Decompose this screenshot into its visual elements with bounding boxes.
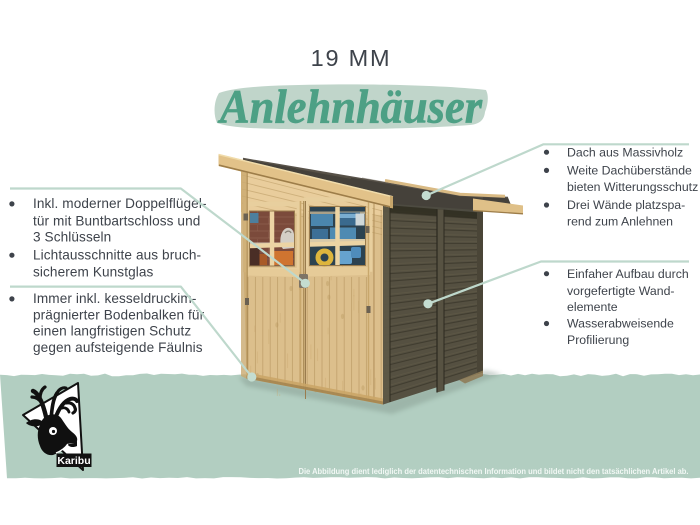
svg-text:Inkl. moderner Doppelflügel-: Inkl. moderner Doppelflügel- bbox=[33, 196, 207, 211]
svg-text:Profilierung: Profilierung bbox=[567, 333, 629, 347]
svg-text:Lichtausschnitte aus bruch-: Lichtausschnitte aus bruch- bbox=[33, 247, 201, 262]
svg-text:elemente: elemente bbox=[567, 300, 618, 314]
svg-text:Wasserabweisende: Wasserabweisende bbox=[567, 317, 674, 331]
svg-text:Drei Wände platzspa-: Drei Wände platzspa- bbox=[567, 198, 685, 212]
svg-text:einen langfristigen Schutz: einen langfristigen Schutz bbox=[33, 324, 191, 339]
svg-text:bieten Witterungsschutz: bieten Witterungsschutz bbox=[567, 180, 698, 194]
svg-text:prägnierter Bodenbalken für: prägnierter Bodenbalken für bbox=[33, 307, 205, 322]
svg-text:19 MM: 19 MM bbox=[311, 45, 392, 71]
svg-text:vorgefertigte Wand-: vorgefertigte Wand- bbox=[567, 284, 675, 298]
svg-text:3 Schlüsseln: 3 Schlüsseln bbox=[33, 230, 111, 245]
svg-text:rend zum Anlehnen: rend zum Anlehnen bbox=[567, 215, 673, 229]
svg-text:sicherem Kunstglas: sicherem Kunstglas bbox=[33, 264, 154, 279]
svg-text:Dach aus Massivholz: Dach aus Massivholz bbox=[567, 145, 683, 159]
svg-text:Karibu: Karibu bbox=[57, 455, 90, 467]
svg-text:tür mit Buntbartschloss und: tür mit Buntbartschloss und bbox=[33, 213, 200, 228]
svg-text:gegen aufsteigende Fäulnis: gegen aufsteigende Fäulnis bbox=[33, 340, 203, 355]
svg-text:Weite Dachüberstände: Weite Dachüberstände bbox=[567, 164, 692, 178]
svg-text:Immer inkl. kesseldruckim-: Immer inkl. kesseldruckim- bbox=[33, 291, 196, 306]
svg-text:Anlehnhäuser: Anlehnhäuser bbox=[217, 81, 483, 134]
svg-text:Die Abbildung dient lediglich: Die Abbildung dient lediglich der datent… bbox=[299, 467, 689, 476]
svg-text:Einfaher Aufbau durch: Einfaher Aufbau durch bbox=[567, 267, 689, 281]
